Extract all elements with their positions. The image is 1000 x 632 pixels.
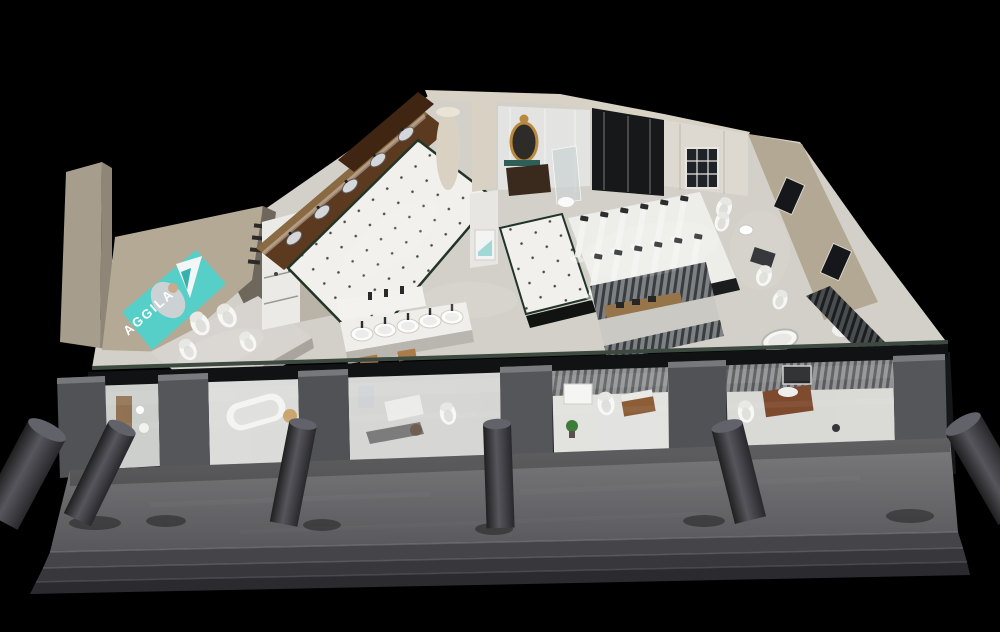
shelf-item xyxy=(274,272,278,276)
pedestal-top xyxy=(436,107,460,117)
shelf-item xyxy=(648,296,656,302)
pillar xyxy=(483,418,515,528)
teal-marble-counter xyxy=(504,160,540,166)
ornate-gold-mirror xyxy=(511,123,537,161)
pillar-shadow xyxy=(303,519,341,531)
floor-light-pool xyxy=(730,210,790,290)
shower-glass-column xyxy=(552,146,581,204)
pillar-shadow xyxy=(683,515,725,527)
left-tower-wall xyxy=(60,162,102,348)
render-canvas: AGGILA xyxy=(0,0,1000,632)
pedestal-column xyxy=(436,110,460,190)
backsplash-item xyxy=(368,292,372,300)
pillar-shadow xyxy=(886,509,934,523)
dark-wood-desk xyxy=(506,164,551,196)
storefront-pier xyxy=(158,373,210,471)
shelf-item xyxy=(616,302,624,308)
center-column xyxy=(472,98,496,192)
mirror-crown-ornament xyxy=(520,115,529,124)
display-window xyxy=(686,148,718,188)
floor-light-pool xyxy=(422,282,518,318)
showroom-3d-render: AGGILA xyxy=(0,0,1000,632)
shelf-item xyxy=(632,299,640,305)
backsplash-item xyxy=(400,286,404,294)
backsplash-item xyxy=(384,289,388,297)
towel-stack xyxy=(558,197,574,207)
pillar-shadow xyxy=(146,515,186,527)
